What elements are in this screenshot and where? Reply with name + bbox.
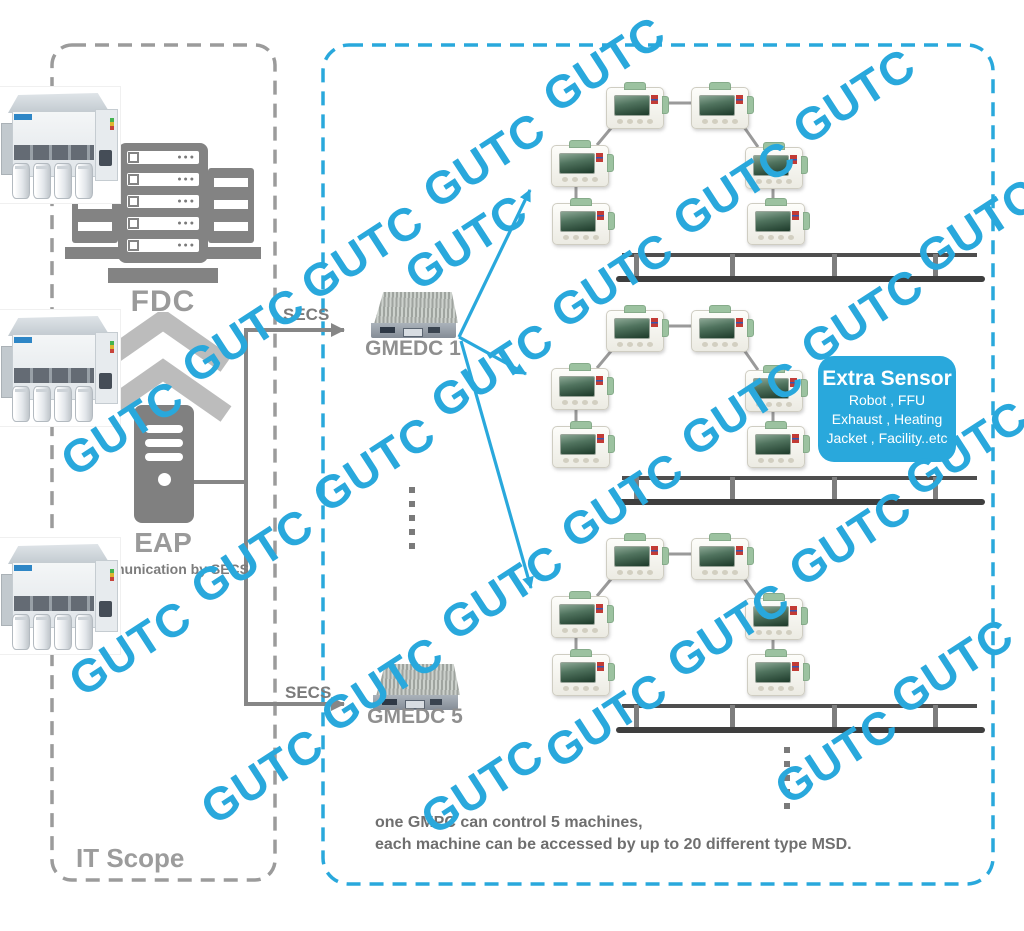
msd-side-connector xyxy=(608,212,615,230)
msd-side-connector xyxy=(803,212,810,230)
msd-brand-logo xyxy=(651,95,658,104)
msd-screen xyxy=(699,546,735,567)
machine-tower xyxy=(95,332,118,404)
msd-buttons xyxy=(562,400,568,405)
msd-side-connector xyxy=(607,154,614,172)
msd-buttons xyxy=(562,628,568,633)
rail-post xyxy=(730,705,735,729)
msd-sensor-device xyxy=(747,654,805,696)
machine-label-tag xyxy=(14,114,32,120)
machine-cylinder xyxy=(54,614,72,650)
diagram-canvas: FDC EAP Communication by SECS IT Scope S… xyxy=(0,0,1024,931)
rail-post xyxy=(832,477,837,501)
msd-brand-logo xyxy=(792,662,799,671)
msd-brand-logo xyxy=(651,318,658,327)
msd-brand-logo xyxy=(736,95,743,104)
msd-connector-tab xyxy=(709,533,731,541)
msd-side-connector xyxy=(607,377,614,395)
rail-bottom-bar xyxy=(616,727,985,733)
msd-screen xyxy=(614,546,650,567)
msd-connector-tab xyxy=(624,82,646,90)
msd-sensor-device xyxy=(552,426,610,468)
msd-connector-tab xyxy=(569,140,591,148)
msd-brand-logo xyxy=(597,662,604,671)
msd-connector-tab xyxy=(570,421,592,429)
msd-sensor-device xyxy=(691,87,749,129)
extra-sensor-line: Robot , FFU xyxy=(818,391,956,410)
msd-side-connector xyxy=(803,435,810,453)
msd-screen xyxy=(560,662,596,683)
msd-side-connector xyxy=(803,663,810,681)
extra-sensor-title: Extra Sensor xyxy=(818,367,956,391)
machine-label-tag xyxy=(14,337,32,343)
msd-buttons xyxy=(702,342,708,347)
msd-buttons xyxy=(758,235,764,240)
machine-tower xyxy=(95,560,118,632)
rail-post xyxy=(832,254,837,278)
msd-connector-tab xyxy=(569,363,591,371)
msd-screen xyxy=(614,318,650,339)
msd-sensor-device xyxy=(552,203,610,245)
msd-screen xyxy=(755,662,791,683)
msd-screen xyxy=(559,153,595,174)
msd-side-connector xyxy=(662,96,669,114)
msd-brand-logo xyxy=(736,318,743,327)
machine-modules xyxy=(14,596,94,611)
msd-connector-tab xyxy=(569,591,591,599)
msd-screen xyxy=(699,318,735,339)
machine-cylinder xyxy=(54,163,72,199)
msd-side-connector xyxy=(747,319,754,337)
msd-sensor-device xyxy=(691,538,749,580)
msd-connector-tab xyxy=(765,649,787,657)
msd-sensor-device xyxy=(747,203,805,245)
msd-sensor-device xyxy=(747,426,805,468)
msd-sensor-device xyxy=(551,368,609,410)
msd-brand-logo xyxy=(736,546,743,555)
msd-connector-tab xyxy=(624,305,646,313)
msd-screen xyxy=(560,211,596,232)
msd-side-connector xyxy=(607,605,614,623)
msd-brand-logo xyxy=(597,211,604,220)
msd-brand-logo xyxy=(596,604,603,613)
msd-screen xyxy=(559,604,595,625)
msd-side-connector xyxy=(608,435,615,453)
msd-screen xyxy=(755,211,791,232)
msd-side-connector xyxy=(662,319,669,337)
msd-connector-tab xyxy=(570,198,592,206)
msd-screen xyxy=(699,95,735,116)
msd-connector-tab xyxy=(709,305,731,313)
msd-brand-logo xyxy=(792,434,799,443)
msd-connector-tab xyxy=(624,533,646,541)
machine-cylinder xyxy=(33,614,51,650)
msd-buttons xyxy=(758,458,764,463)
msd-screen xyxy=(560,434,596,455)
msd-connector-tab xyxy=(709,82,731,90)
extra-sensor-line: Exhaust , Heating xyxy=(818,410,956,429)
rail-bottom-bar xyxy=(616,276,985,282)
msd-buttons xyxy=(702,119,708,124)
msd-sensor-device xyxy=(551,596,609,638)
msd-sensor-device xyxy=(606,538,664,580)
msd-side-connector xyxy=(801,607,808,625)
msd-side-connector xyxy=(608,663,615,681)
msd-buttons xyxy=(563,235,569,240)
msd-sensor-device xyxy=(551,145,609,187)
msd-screen xyxy=(614,95,650,116)
msd-buttons xyxy=(563,458,569,463)
machine-cylinder xyxy=(75,163,93,199)
msd-brand-logo xyxy=(596,153,603,162)
msd-brand-logo xyxy=(792,211,799,220)
msd-connector-tab xyxy=(570,649,592,657)
msd-buttons xyxy=(563,686,569,691)
msd-side-connector xyxy=(747,547,754,565)
msd-brand-logo xyxy=(651,546,658,555)
msd-screen xyxy=(559,376,595,397)
msd-brand-logo xyxy=(596,376,603,385)
machine-label-tag xyxy=(14,565,32,571)
machine-cylinder xyxy=(12,386,30,422)
rail-post xyxy=(730,477,735,501)
machine-cylinder xyxy=(12,614,30,650)
msd-buttons xyxy=(617,119,623,124)
machine-cylinder xyxy=(12,163,30,199)
machine-cylinder xyxy=(33,163,51,199)
machine-tower xyxy=(95,109,118,181)
machine-modules xyxy=(14,145,94,160)
rail-post xyxy=(730,254,735,278)
machine-cylinder xyxy=(54,386,72,422)
msd-buttons xyxy=(702,570,708,575)
msd-connector-tab xyxy=(765,198,787,206)
msd-sensor-device xyxy=(606,310,664,352)
msd-sensor-device xyxy=(691,310,749,352)
msd-buttons xyxy=(758,686,764,691)
msd-side-connector xyxy=(662,547,669,565)
msd-buttons xyxy=(617,342,623,347)
machine-cylinder xyxy=(33,386,51,422)
msd-buttons xyxy=(617,570,623,575)
msd-buttons xyxy=(562,177,568,182)
msd-screen xyxy=(755,434,791,455)
machine-modules xyxy=(14,368,94,383)
msd-side-connector xyxy=(747,96,754,114)
msd-brand-logo xyxy=(597,434,604,443)
msd-sensor-device xyxy=(606,87,664,129)
it-scope-label: IT Scope xyxy=(76,843,184,874)
